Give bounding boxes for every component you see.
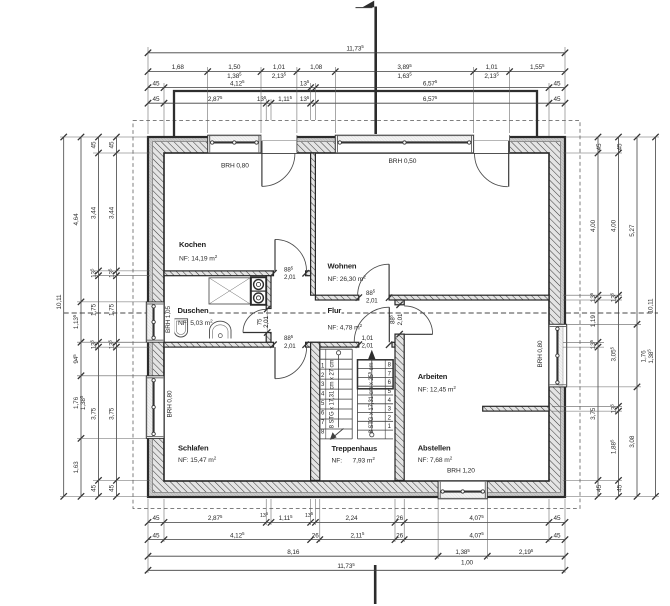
svg-text:45: 45 [554,96,561,103]
svg-text:1,75: 1,75 [91,303,98,316]
svg-text:45: 45 [153,80,160,87]
svg-text:Flur: Flur [328,306,342,315]
svg-text:2,24: 2,24 [345,515,358,522]
svg-text:3,44: 3,44 [109,206,116,219]
svg-text:NF:: NF: [332,458,343,465]
svg-text:NF: 7,68 m2: NF: 7,68 m2 [418,456,453,464]
svg-text:Schlafen: Schlafen [178,443,209,452]
svg-text:45: 45 [91,484,98,491]
svg-text:1,00: 1,00 [461,560,474,567]
svg-text:1,75: 1,75 [109,303,116,316]
svg-text:2,01: 2,01 [362,343,374,350]
svg-text:2,01: 2,01 [284,274,296,281]
svg-text:1,63: 1,63 [73,461,80,474]
svg-text:BRH 1,05: BRH 1,05 [165,306,172,333]
svg-text:BRH 0,50: BRH 0,50 [389,158,417,165]
svg-text:26: 26 [396,515,403,522]
svg-text:45: 45 [617,143,624,150]
svg-text:4,64: 4,64 [73,213,80,226]
svg-text:Arbeiten: Arbeiten [418,372,448,381]
svg-text:26: 26 [312,532,319,539]
svg-text:45: 45 [554,515,561,522]
svg-text:45: 45 [153,515,160,522]
svg-text:2,01: 2,01 [284,343,296,350]
svg-text:45: 45 [554,532,561,539]
svg-text:Wohnen: Wohnen [328,262,357,271]
svg-text:3,75: 3,75 [91,407,98,420]
svg-text:45: 45 [109,141,116,148]
svg-text:NF: 5,03 m2: NF: 5,03 m2 [178,319,213,327]
svg-text:NF: 14,19 m2: NF: 14,19 m2 [179,254,218,262]
svg-text:NF: 12,45 m2: NF: 12,45 m2 [418,385,457,393]
svg-text:45: 45 [554,80,561,87]
svg-text:8 STG x 17,31 cm x 27 cm: 8 STG x 17,31 cm x 27 cm [330,360,336,429]
svg-text:NF: 26,30 m2: NF: 26,30 m2 [328,275,367,283]
svg-text:1,01: 1,01 [273,64,286,71]
svg-text:45: 45 [153,96,160,103]
svg-text:2,01: 2,01 [397,313,404,325]
svg-text:45: 45 [596,484,603,491]
svg-text:3,75: 3,75 [109,407,116,420]
svg-text:BRH 0,80: BRH 0,80 [221,163,249,170]
svg-text:3,44: 3,44 [91,206,98,219]
svg-text:NF: 4,78 m2: NF: 4,78 m2 [328,323,363,331]
svg-text:BRH 1,20: BRH 1,20 [447,468,475,475]
svg-text:1,50: 1,50 [228,64,241,71]
svg-text:5,27: 5,27 [629,224,636,237]
svg-text:10,11: 10,11 [647,298,654,314]
svg-text:26: 26 [396,532,403,539]
svg-text:3,08: 3,08 [629,435,636,448]
svg-text:10,11: 10,11 [56,294,63,310]
svg-text:1,19: 1,19 [590,315,597,328]
svg-text:4,00: 4,00 [611,219,618,232]
svg-text:8,16: 8,16 [287,549,300,556]
svg-text:NF: 15,47 m2: NF: 15,47 m2 [178,455,217,463]
svg-text:45: 45 [596,143,603,150]
svg-text:1,08: 1,08 [310,64,323,71]
svg-text:Treppenhaus: Treppenhaus [332,444,378,453]
svg-text:Abstellen: Abstellen [418,444,451,453]
svg-text:7,93 m2: 7,93 m2 [353,456,376,464]
svg-text:45: 45 [617,484,624,491]
svg-text:1,68: 1,68 [172,64,185,71]
svg-text:45: 45 [91,141,98,148]
svg-text:1,01: 1,01 [486,64,499,71]
svg-text:Duschen: Duschen [178,306,210,315]
svg-text:4,00: 4,00 [590,219,597,232]
svg-text:BRH 0,80: BRH 0,80 [167,390,174,417]
svg-text:2,01: 2,01 [263,316,270,328]
svg-text:1,01: 1,01 [362,335,374,342]
svg-text:BRH 0,80: BRH 0,80 [537,340,544,367]
svg-text:2,01: 2,01 [366,297,378,304]
svg-text:Kochen: Kochen [179,240,206,249]
svg-text:45: 45 [153,532,160,539]
svg-text:45: 45 [109,484,116,491]
svg-text:3,75: 3,75 [590,407,597,420]
